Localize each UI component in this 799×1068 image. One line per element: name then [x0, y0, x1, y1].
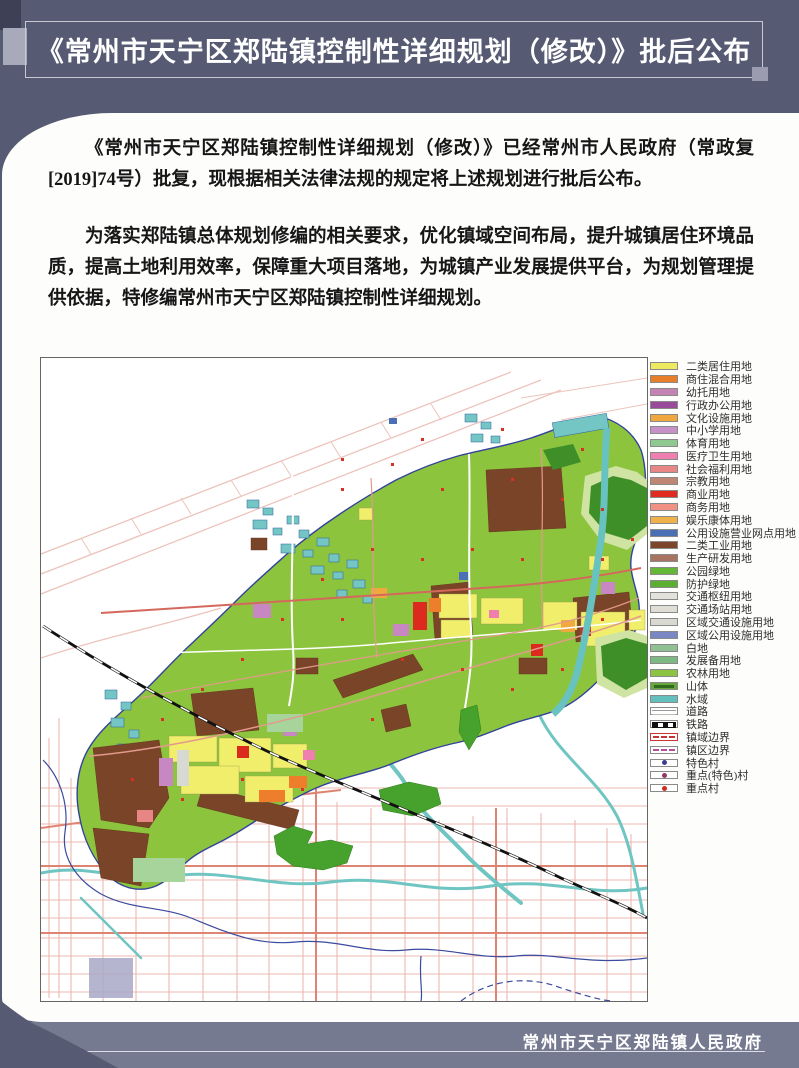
legend-swatch-fill [650, 375, 678, 383]
legend-swatch-fill [650, 452, 678, 460]
legend-swatch-fill [650, 631, 678, 639]
legend-swatch-fill [650, 592, 678, 600]
announcement-page: 《常州市天宁区郑陆镇控制性详细规划（修改）》批后公布 《常州市天宁区郑陆镇控制性… [0, 0, 799, 1068]
paragraph-purpose: 为落实郑陆镇总体规划修编的相关要求，优化镇域空间布局，提升城镇居住环境品质，提高… [48, 222, 754, 315]
legend-swatch-fill [650, 516, 678, 524]
legend-swatch-mountain [650, 682, 678, 690]
legend-swatch-boundary2 [650, 746, 678, 754]
legend-label: 重点村 [686, 780, 719, 796]
planning-map-frame [40, 357, 648, 1002]
title-box: 《常州市天宁区郑陆镇控制性详细规划（修改）》批后公布 [25, 21, 763, 78]
legend-swatch-fill [650, 439, 678, 447]
legend-swatch-dot [650, 784, 678, 792]
legend-swatch-fill [650, 541, 678, 549]
map-canvas [41, 358, 647, 1001]
legend-swatch-fill [650, 669, 678, 677]
legend-item: 重点(特色)村 [650, 769, 798, 782]
footer-bar: 常州市天宁区郑陆镇人民政府 [0, 1022, 799, 1068]
legend-swatch-fill [650, 465, 678, 473]
legend-swatch-fill [650, 554, 678, 562]
legend-swatch-fill [650, 644, 678, 652]
announcement-body: 《常州市天宁区郑陆镇控制性详细规划（修改）》已经常州市人民政府（常政复[2019… [48, 134, 754, 341]
legend-swatch-fill [650, 490, 678, 498]
legend-item: 山体 [650, 680, 798, 693]
legend-swatch-fill [650, 388, 678, 396]
legend-swatch-fill [650, 477, 678, 485]
paragraph-approval: 《常州市天宁区郑陆镇控制性详细规划（修改）》已经常州市人民政府（常政复[2019… [48, 134, 754, 196]
legend-swatch-fill [650, 695, 678, 703]
page-title: 《常州市天宁区郑陆镇控制性详细规划（修改）》批后公布 [26, 22, 762, 77]
legend-swatch-fill [650, 503, 678, 511]
legend-swatch-fill [650, 567, 678, 575]
legend-swatch-fill [650, 580, 678, 588]
legend-swatch-rail [650, 720, 678, 728]
legend-swatch-fill [650, 605, 678, 613]
legend-swatch-dot [650, 771, 678, 779]
legend-item: 镇区边界 [650, 743, 798, 756]
legend-swatch-fill [650, 618, 678, 626]
legend-swatch-fill [650, 401, 678, 409]
legend-item: 农林用地 [650, 667, 798, 680]
legend-swatch-fill [650, 656, 678, 664]
legend-swatch-fill [650, 362, 678, 370]
legend-swatch-boundary [650, 733, 678, 741]
legend: 二类居住用地商住混合用地幼托用地行政办公用地文化设施用地中小学用地体育用地医疗卫… [650, 360, 798, 795]
legend-swatch-road [650, 707, 678, 715]
legend-swatch-dot [650, 759, 678, 767]
footer-government-name: 常州市天宁区郑陆镇人民政府 [523, 1029, 764, 1053]
header-corner-square-dark [0, 0, 21, 30]
legend-swatch-fill [650, 426, 678, 434]
legend-item: 道路 [650, 705, 798, 718]
legend-item: 重点村 [650, 782, 798, 795]
header-corner-square-light [3, 28, 27, 65]
legend-swatch-fill [650, 529, 678, 537]
legend-item: 水域 [650, 692, 798, 705]
legend-item: 区域公用设施用地 [650, 628, 798, 641]
title-corner-square [752, 67, 768, 81]
legend-swatch-fill [650, 414, 678, 422]
